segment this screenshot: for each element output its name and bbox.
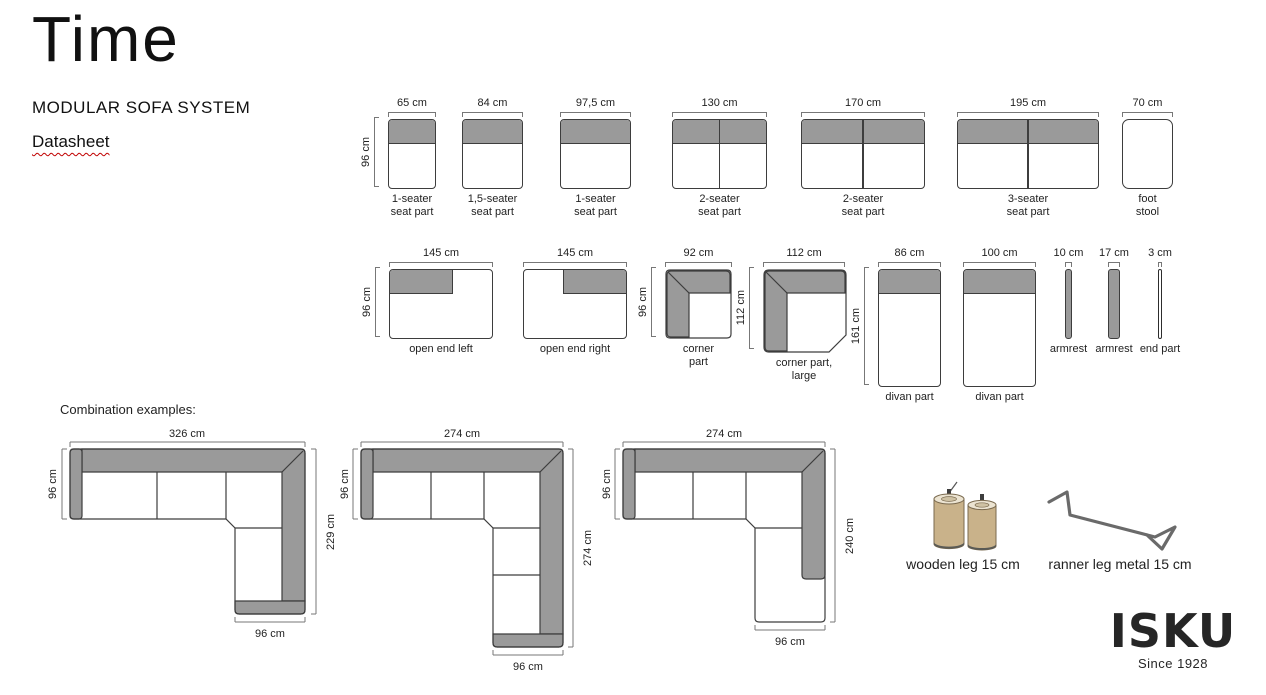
sofa-diagram [957,119,1099,189]
backrest-area [463,120,522,144]
module-armrest-17: 17 cm armrest [1108,247,1120,356]
backrest-area [389,120,435,144]
height-dimension-openend: 96 cm [363,267,380,337]
width-dimension-bracket [1065,262,1072,267]
module-name-label: foot stool [1074,193,1221,219]
module-foot-stool: 70 cm foot stool [1122,97,1173,219]
sofa-diagram [801,119,925,189]
module-divan-86: 86 cm divan part [878,247,941,404]
combo2-right-dim: 274 cm [582,530,594,566]
runner-leg-label: ranner leg metal 15 cm [1040,556,1200,572]
combo3-bottom-dim: 96 cm [775,636,805,648]
header: Time MODULAR SOFA SYSTEM Datasheet [32,6,250,152]
width-dimension-bracket [665,262,732,267]
sofa-diagram [672,119,767,189]
sofa-diagram [523,269,627,339]
seat-divider [862,120,863,188]
module-name-label: divan part [915,391,1084,404]
module-corner-part-large: 112 cm corner part, large [763,247,845,383]
end-part-diagram [1158,269,1162,339]
datasheet-page: Time MODULAR SOFA SYSTEM Datasheet 96 cm… [0,0,1266,695]
width-dimension-label: 3 cm [1110,247,1210,260]
width-dimension-bracket [801,112,925,117]
sofa-diagram [878,269,941,387]
backrest-area [563,270,626,294]
module-name-label: end part [1110,343,1210,356]
width-dimension-bracket [672,112,767,117]
doc-type-label: Datasheet [32,132,110,152]
module-open-end-left: 145 cm open end left [389,247,493,356]
corner-diagram [665,269,732,339]
combo2-left-dim: 96 cm [339,469,351,499]
corner-large-diagram [763,269,847,353]
width-dimension-bracket [963,262,1036,267]
backrest-area [390,270,453,294]
height-dimension-corner: 96 cm [639,267,656,337]
width-dimension-bracket [957,112,1099,117]
wooden-leg-icon [915,478,1015,556]
combo1-bottom-dim: 96 cm [255,628,285,640]
brand-logo-text: ISKU [1098,608,1248,654]
combo3-left-dim: 96 cm [601,469,613,499]
module-corner-part: 92 cm corner part [665,247,732,369]
width-dimension-bracket [878,262,941,267]
runner-leg-icon [1035,480,1195,552]
sofa-diagram [389,269,493,339]
armrest-diagram [1065,269,1072,339]
combo1-top-dim: 326 cm [169,428,205,440]
height-dimension-corner-large: 112 cm [737,267,754,349]
module-open-end-right: 145 cm open end right [523,247,627,356]
combo3-top-dim: 274 cm [706,428,742,440]
width-dimension-bracket [1122,112,1173,117]
backrest-area [561,120,630,144]
sofa-diagram [560,119,631,189]
module-divan-100: 100 cm divan part [963,247,1036,404]
width-dimension-bracket [1158,262,1162,267]
stool-diagram [1122,119,1173,189]
sofa-diagram [462,119,523,189]
combination-heading: Combination examples: [60,402,196,417]
seat-divider [719,120,720,188]
module-name-label: corner part, large [715,357,893,383]
sofa-diagram [388,119,436,189]
width-dimension-bracket [1108,262,1120,267]
sofa-diagram [963,269,1036,387]
brand-logo: ISKU Since 1928 [1098,608,1248,671]
combination-diagram-1: 326 cm 96 cm 229 cm 96 cm [40,424,360,664]
backrest-area [964,270,1035,294]
width-dimension-bracket [462,112,523,117]
width-dimension-bracket [523,262,627,267]
height-dimension-row1: 96 cm [362,117,379,187]
combination-diagram-3: 274 cm 96 cm 240 cm 96 cm [595,424,863,652]
seat-divider [1027,120,1028,188]
combination-diagram-2: 274 cm 96 cm 274 cm 96 cm [333,424,601,679]
width-dimension-bracket [560,112,631,117]
combo3-right-dim: 240 cm [844,518,856,554]
width-dimension-bracket [389,262,493,267]
brand-logo-tagline: Since 1928 [1098,656,1248,671]
combo2-top-dim: 274 cm [444,428,480,440]
width-dimension-bracket [388,112,436,117]
page-title: Time [32,6,250,73]
combo1-left-dim: 96 cm [47,469,59,499]
module-armrest-10: 10 cm armrest [1065,247,1072,356]
combo2-bottom-dim: 96 cm [513,661,543,673]
armrest-diagram [1108,269,1120,339]
width-dimension-bracket [763,262,845,267]
backrest-area [879,270,940,294]
module-seat-170: 170 cm 2-seater seat part [801,97,925,219]
page-subtitle: MODULAR SOFA SYSTEM [32,98,250,118]
module-end-part: 3 cm end part [1158,247,1162,356]
width-dimension-label: 70 cm [1074,97,1221,110]
wooden-leg-label: wooden leg 15 cm [898,556,1028,572]
module-seat-97: 97,5 cm 1-seater seat part [560,97,631,219]
